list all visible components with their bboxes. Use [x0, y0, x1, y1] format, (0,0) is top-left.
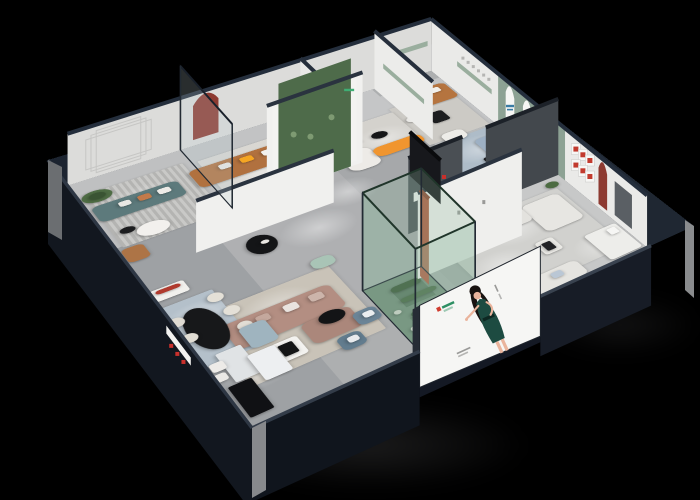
- hostess-leg: [501, 339, 509, 352]
- wall-back-left-wall-text-dash: [322, 72, 325, 75]
- wall-back-left-wall-text-dash: [313, 75, 316, 78]
- wall-back-left-wall-text-dash: [340, 67, 343, 70]
- building-shadow: [540, 295, 700, 355]
- showroom-render-canvas: Isometric 3D cutaway render of a furnitu…: [0, 0, 700, 500]
- floorplan-floor: [48, 38, 694, 428]
- corner-post-right: [685, 220, 694, 298]
- billboard-caption-line: [458, 351, 468, 357]
- wall-front-left-logo-mark: [175, 352, 179, 356]
- wall-back-left-wall-text-dash: [304, 78, 307, 81]
- hostess-leg: [495, 341, 503, 354]
- wall-front-left-logo-mark: [169, 344, 173, 348]
- wall-back-left-wall-text-dash: [331, 69, 334, 72]
- wall-front-left-logo-mark: [181, 360, 185, 364]
- billboard-caption-line: [457, 347, 471, 355]
